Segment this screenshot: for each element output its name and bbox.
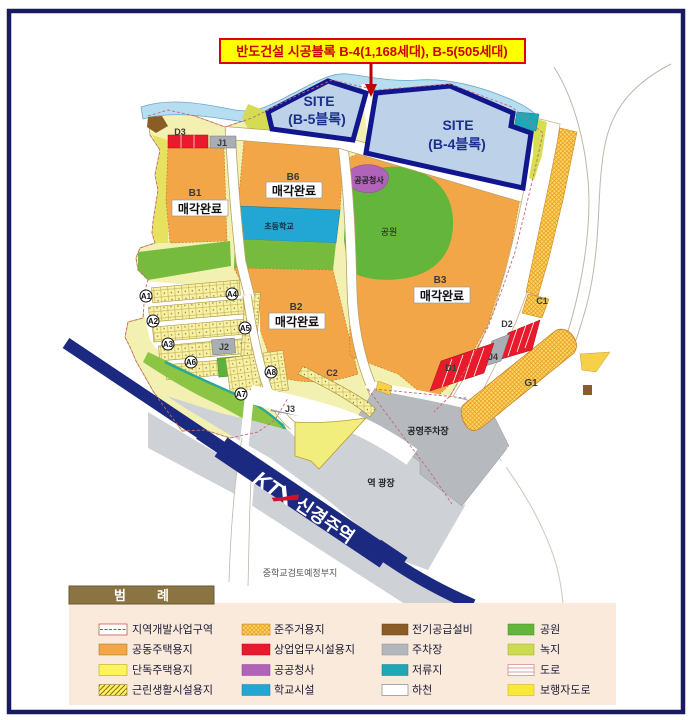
svg-text:준주거용지: 준주거용지 bbox=[274, 623, 325, 636]
svg-text:D3: D3 bbox=[174, 127, 186, 137]
svg-text:D2: D2 bbox=[501, 319, 513, 329]
svg-text:A8: A8 bbox=[266, 368, 277, 377]
svg-text:J4: J4 bbox=[488, 352, 498, 362]
svg-text:전기공급설비: 전기공급설비 bbox=[412, 623, 473, 636]
svg-text:지역개발사업구역: 지역개발사업구역 bbox=[132, 623, 213, 636]
svg-text:단독주택용지: 단독주택용지 bbox=[132, 664, 193, 677]
svg-text:(B-4블록): (B-4블록) bbox=[428, 136, 486, 152]
svg-text:도로: 도로 bbox=[540, 665, 560, 677]
svg-text:A6: A6 bbox=[186, 358, 197, 367]
svg-text:A7: A7 bbox=[236, 390, 247, 399]
svg-text:B6: B6 bbox=[287, 172, 300, 183]
svg-text:A1: A1 bbox=[141, 292, 152, 301]
svg-text:A4: A4 bbox=[227, 290, 238, 299]
svg-text:공동주택용지: 공동주택용지 bbox=[132, 643, 193, 656]
svg-text:공공청사: 공공청사 bbox=[354, 175, 384, 185]
svg-text:J3: J3 bbox=[285, 404, 295, 414]
svg-text:C1: C1 bbox=[536, 296, 548, 306]
svg-text:역 광장: 역 광장 bbox=[367, 477, 395, 488]
svg-text:공원: 공원 bbox=[540, 623, 560, 636]
svg-text:매각완료: 매각완료 bbox=[275, 314, 319, 329]
svg-text:반도건설 시공블록 B-4(1,168세대), B-5(50: 반도건설 시공블록 B-4(1,168세대), B-5(505세대) bbox=[236, 44, 507, 59]
svg-text:J1: J1 bbox=[217, 138, 227, 148]
svg-text:A2: A2 bbox=[148, 317, 159, 326]
svg-text:B3: B3 bbox=[434, 275, 447, 286]
svg-text:B1: B1 bbox=[189, 188, 202, 199]
svg-text:하천: 하천 bbox=[412, 683, 432, 697]
svg-text:녹지: 녹지 bbox=[540, 643, 560, 656]
svg-text:범: 범 bbox=[114, 588, 126, 603]
svg-text:SITE: SITE bbox=[442, 117, 473, 133]
svg-text:A3: A3 bbox=[163, 340, 174, 349]
svg-text:보행자도로: 보행자도로 bbox=[540, 684, 591, 697]
svg-text:주차장: 주차장 bbox=[412, 643, 442, 656]
svg-text:공원: 공원 bbox=[381, 227, 398, 237]
svg-text:공공청사: 공공청사 bbox=[274, 664, 314, 677]
svg-text:초등학교: 초등학교 bbox=[264, 221, 294, 231]
svg-text:매각완료: 매각완료 bbox=[178, 201, 222, 216]
svg-text:공영주차장: 공영주차장 bbox=[407, 425, 449, 436]
svg-text:B2: B2 bbox=[290, 302, 303, 313]
svg-text:상업업무시설용지: 상업업무시설용지 bbox=[274, 643, 355, 656]
svg-text:매각완료: 매각완료 bbox=[420, 288, 464, 303]
svg-text:중학교검토예정부지: 중학교검토예정부지 bbox=[263, 567, 338, 578]
svg-text:저류지: 저류지 bbox=[412, 664, 442, 677]
svg-text:SITE: SITE bbox=[303, 93, 334, 109]
svg-text:D1: D1 bbox=[445, 363, 457, 373]
svg-text:G1: G1 bbox=[524, 378, 538, 389]
svg-text:매각완료: 매각완료 bbox=[272, 183, 316, 198]
svg-text:A5: A5 bbox=[240, 324, 251, 333]
svg-text:례: 례 bbox=[157, 588, 169, 603]
svg-text:근린생활시설용지: 근린생활시설용지 bbox=[132, 683, 213, 697]
svg-text:C2: C2 bbox=[326, 368, 338, 378]
svg-text:J2: J2 bbox=[219, 342, 229, 352]
svg-text:(B-5블록): (B-5블록) bbox=[288, 111, 346, 127]
svg-text:학교시설: 학교시설 bbox=[274, 684, 314, 697]
